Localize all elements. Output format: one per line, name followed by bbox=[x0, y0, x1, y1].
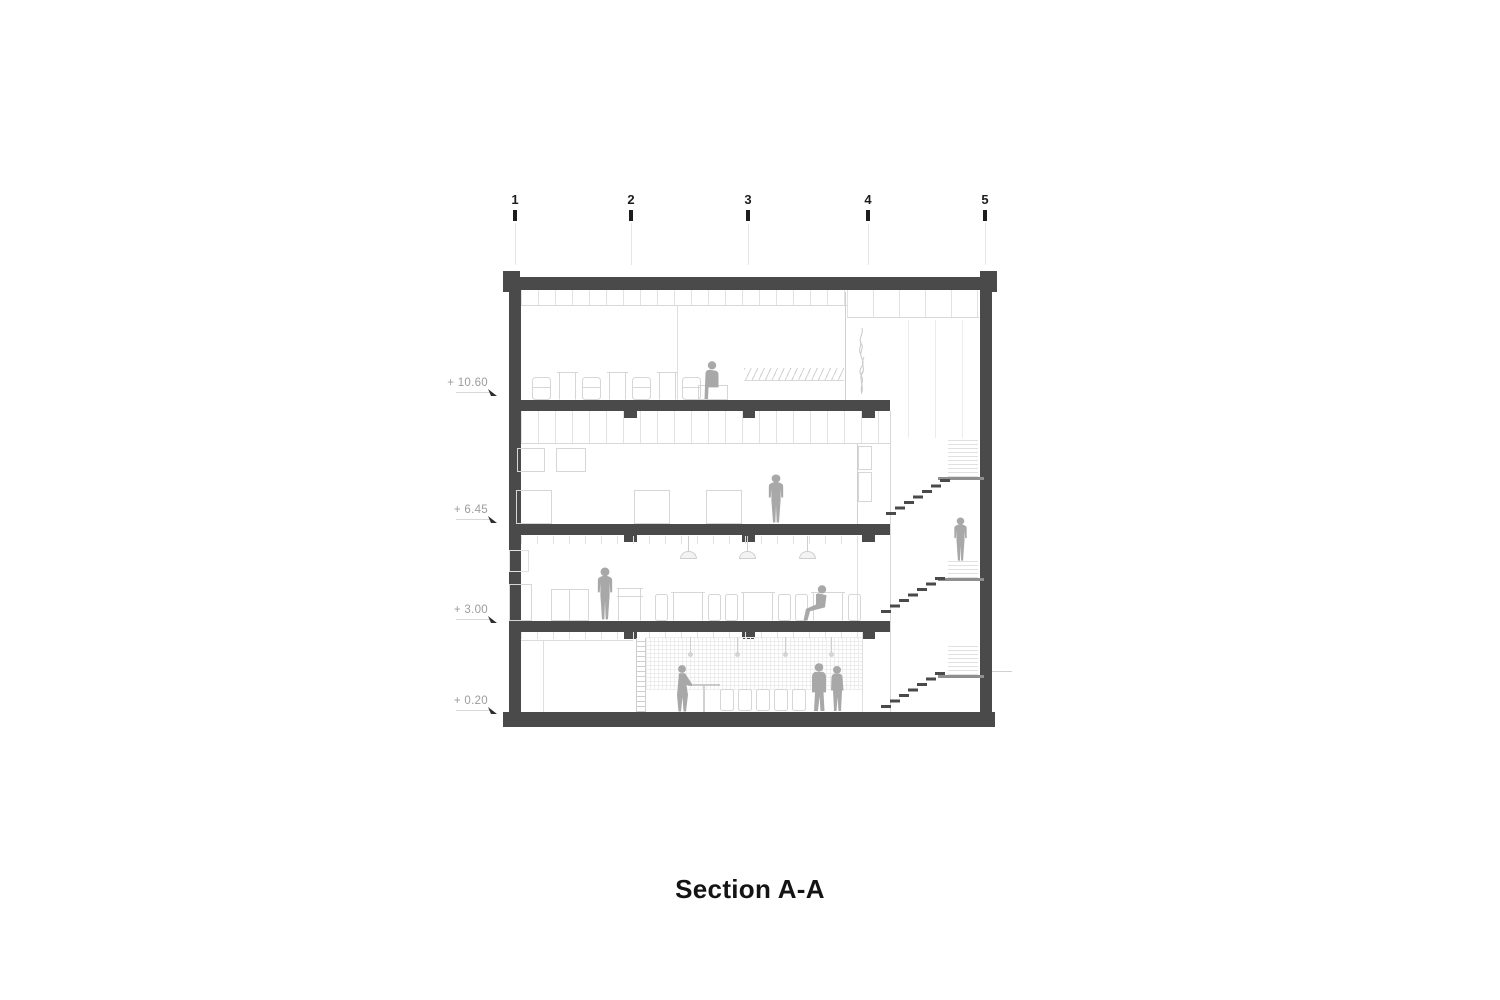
partition-line bbox=[862, 632, 863, 712]
upper-cabinet-outline bbox=[509, 550, 529, 572]
grid-line bbox=[631, 223, 632, 265]
serving-cart-outline bbox=[616, 586, 644, 621]
pendant-lamp-shade bbox=[680, 551, 697, 559]
grid-tick bbox=[983, 210, 987, 221]
grid-marker-label: 2 bbox=[611, 193, 651, 207]
ceiling-panel-band bbox=[521, 411, 890, 444]
partition-line bbox=[845, 292, 846, 400]
stair-flight bbox=[881, 577, 947, 619]
right-wall bbox=[980, 277, 992, 713]
ground-slab bbox=[503, 712, 995, 727]
ceiling-panel-band bbox=[847, 290, 979, 318]
bar-stools-and-tables bbox=[532, 369, 704, 401]
counter-divider-line bbox=[569, 590, 570, 620]
level-marker-3-00: + 3.00 bbox=[420, 604, 498, 624]
level-marker-6-45: + 6.45 bbox=[420, 504, 498, 524]
pendant-lamp-stem bbox=[785, 637, 786, 652]
kitchen-counter bbox=[551, 589, 589, 621]
pendant-lamp-bulb bbox=[829, 652, 834, 657]
column-stub bbox=[862, 535, 875, 542]
grid-marker-label: 4 bbox=[848, 193, 888, 207]
grid-line bbox=[868, 223, 869, 265]
ceiling-line bbox=[521, 640, 633, 641]
drawing-title: Section A-A bbox=[600, 874, 900, 905]
level-marker-0-20: + 0.20 bbox=[420, 695, 498, 715]
pendant-lamp-shade bbox=[799, 551, 816, 559]
pendant-lamp-stem bbox=[747, 536, 748, 551]
wall-opening-outline bbox=[556, 448, 586, 472]
grid-marker-5: 5 bbox=[965, 193, 1005, 265]
plant-decoration bbox=[850, 324, 874, 396]
roof-slab bbox=[507, 277, 993, 290]
grid-marker-4: 4 bbox=[848, 193, 888, 265]
floor-slab-10-60 bbox=[512, 400, 890, 411]
grid-line bbox=[985, 223, 986, 265]
seated-person-figure bbox=[800, 585, 834, 621]
ceiling-panel-band bbox=[521, 290, 847, 306]
pendant-lamp-bulb bbox=[783, 652, 788, 657]
stair-riser-lines bbox=[948, 560, 978, 578]
stair-riser-lines bbox=[948, 440, 978, 477]
stair-flight bbox=[886, 479, 952, 521]
leader-arrow-icon bbox=[488, 707, 497, 714]
floor-slab-6-45 bbox=[512, 524, 890, 535]
level-marker-10-60: + 10.60 bbox=[420, 377, 498, 397]
standing-person-figure bbox=[594, 567, 616, 621]
standing-person-figure bbox=[951, 517, 970, 562]
leader-line bbox=[456, 519, 490, 520]
grid-marker-label: 1 bbox=[495, 193, 535, 207]
leader-line bbox=[456, 619, 490, 620]
kitchen-sink-unit bbox=[509, 584, 532, 621]
leader-arrow-icon bbox=[488, 616, 497, 623]
pendant-lamp-stem bbox=[807, 536, 808, 551]
exterior-grade-line bbox=[992, 671, 1012, 672]
section-drawing: 1 2 3 4 5 + 10.60 + 6.45 + 3.00 + 0. bbox=[0, 0, 1500, 1000]
leader-line bbox=[456, 710, 490, 711]
door-outline bbox=[516, 490, 552, 524]
pendant-lamp-bulb bbox=[688, 652, 693, 657]
pendant-lamp-stem bbox=[690, 637, 691, 652]
wall-opening-outline bbox=[517, 448, 545, 472]
level-label: + 3.00 bbox=[454, 604, 488, 616]
grid-marker-1: 1 bbox=[495, 193, 535, 265]
door-outline bbox=[706, 490, 742, 524]
planter-hatch bbox=[744, 368, 844, 381]
pendant-lamp-stem bbox=[688, 536, 689, 551]
chair-row-outline bbox=[720, 687, 808, 712]
grid-marker-label: 3 bbox=[728, 193, 768, 207]
grid-marker-label: 5 bbox=[965, 193, 1005, 207]
pendant-lamp-bulb bbox=[735, 652, 740, 657]
stairwell-panel-line bbox=[908, 320, 909, 438]
pendant-lamp-shade bbox=[739, 551, 756, 559]
grid-tick bbox=[866, 210, 870, 221]
floor-slab-3-00 bbox=[512, 621, 890, 632]
grid-marker-2: 2 bbox=[611, 193, 651, 265]
door-frame-outline bbox=[858, 472, 872, 502]
stair-flight bbox=[881, 672, 947, 714]
grid-line bbox=[515, 223, 516, 265]
ceiling-tick-band bbox=[521, 536, 862, 544]
leader-line bbox=[456, 392, 490, 393]
standing-person-figure bbox=[765, 474, 787, 524]
ladder-element bbox=[636, 638, 646, 712]
stairwell-panel-line bbox=[962, 320, 963, 438]
stairwell-boundary-line bbox=[890, 411, 891, 712]
grid-tick bbox=[746, 210, 750, 221]
door-frame-outline bbox=[858, 446, 872, 470]
seated-person-figure bbox=[700, 361, 724, 400]
pendant-lamp-stem bbox=[831, 637, 832, 652]
stairwell-panel-line bbox=[935, 320, 936, 438]
grid-line bbox=[748, 223, 749, 265]
column-stub bbox=[862, 632, 875, 639]
door-outline bbox=[634, 490, 670, 524]
stair-riser-lines bbox=[948, 645, 978, 675]
level-label: + 10.60 bbox=[447, 377, 488, 389]
grid-tick bbox=[629, 210, 633, 221]
standing-person-figure bbox=[673, 665, 693, 712]
level-label: + 0.20 bbox=[454, 695, 488, 707]
grid-marker-3: 3 bbox=[728, 193, 768, 265]
leader-arrow-icon bbox=[488, 389, 497, 396]
level-label: + 6.45 bbox=[454, 504, 488, 516]
couple-figures bbox=[807, 663, 847, 712]
partition-line bbox=[543, 641, 544, 712]
pendant-lamp-stem bbox=[737, 637, 738, 652]
high-table-leg bbox=[703, 686, 705, 712]
grid-tick bbox=[513, 210, 517, 221]
leader-arrow-icon bbox=[488, 516, 497, 523]
